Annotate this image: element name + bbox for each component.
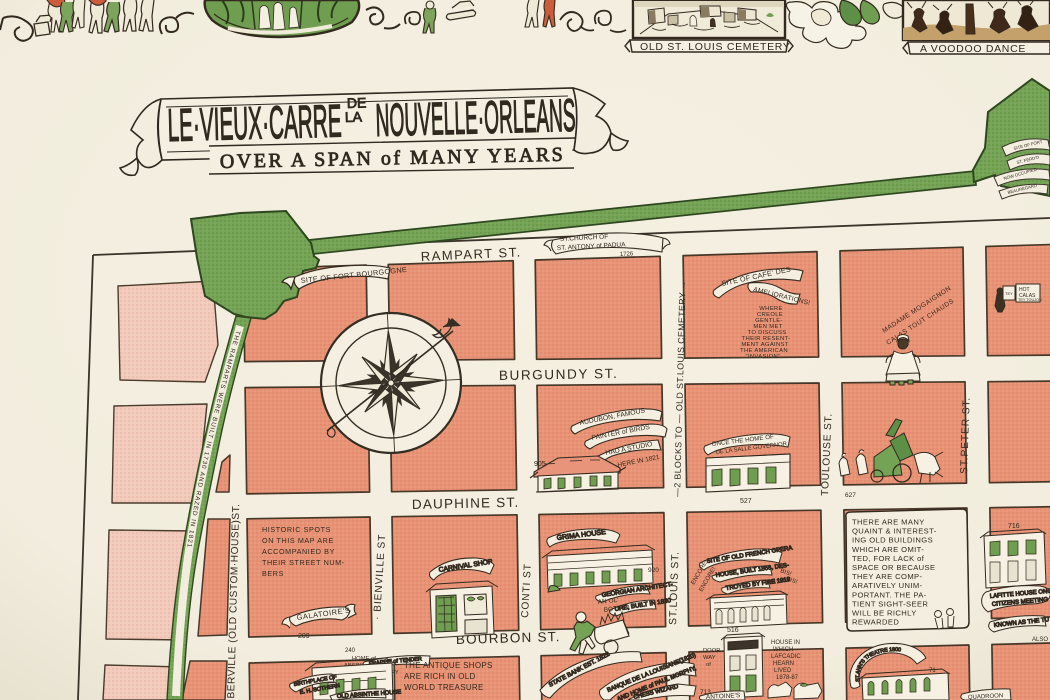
svg-text:THEY ARE COMP-: THEY ARE COMP- (852, 572, 923, 581)
svg-text:THE ANTIQUE SHOPS: THE ANTIQUE SHOPS (404, 661, 493, 670)
svg-text:HOUSE IN: HOUSE IN (771, 640, 800, 646)
svg-text:SPACE OR BECAUSE: SPACE OR BECAUSE (852, 563, 935, 572)
svg-text:ING OLD BUILDINGS: ING OLD BUILDINGS (852, 536, 933, 545)
svg-text:WILL BE RICHLY: WILL BE RICHLY (852, 609, 917, 618)
svg-text:HEARN: HEARN (773, 661, 794, 667)
svg-text:LIVED: LIVED (774, 668, 792, 674)
svg-text:LAFCADIC: LAFCADIC (771, 654, 801, 660)
svg-text:NOUVELLE·ORLEANS: NOUVELLE·ORLEANS (375, 89, 576, 146)
svg-text:ACCOMPANIED BY: ACCOMPANIED BY (262, 547, 335, 556)
svg-text:WORLD TREASURE: WORLD TREASURE (404, 683, 484, 692)
svg-text:QUADROON: QUADROON (968, 693, 1004, 700)
svg-text:LA: LA (345, 109, 363, 125)
svg-text:BURGUNDY ST.: BURGUNDY ST. (499, 366, 619, 383)
svg-text:920: 920 (648, 567, 659, 574)
svg-text:527: 527 (740, 498, 752, 505)
svg-text:TED, FOR LACK of: TED, FOR LACK of (852, 554, 925, 563)
svg-text:713: 713 (700, 689, 711, 696)
svg-text:ARATIVELY UNIM-: ARATIVELY UNIM- (852, 581, 923, 590)
svg-text:ALSO: ALSO (1032, 637, 1048, 643)
svg-text:516: 516 (727, 627, 739, 634)
svg-text:WHICH ARE OMIT-: WHICH ARE OMIT- (852, 545, 924, 554)
svg-text:627: 627 (845, 492, 856, 499)
svg-text:WAY: WAY (703, 655, 716, 661)
svg-text:PORTANT. THE PA-: PORTANT. THE PA- (852, 590, 927, 599)
svg-text:TEY: TEY (1005, 291, 1013, 296)
svg-text:of: of (706, 662, 711, 668)
svg-text:ANTOINE'S: ANTOINE'S (706, 692, 741, 700)
svg-text:ARE RICH IN OLD: ARE RICH IN OLD (404, 672, 476, 681)
svg-text:HISTORIC SPOTS: HISTORIC SPOTS (262, 525, 331, 534)
svg-text:DAUPHINE ST.: DAUPHINE ST. (412, 495, 520, 512)
svg-text:716: 716 (1008, 523, 1020, 530)
svg-text:TIENT SIGHT-SEER: TIENT SIGHT-SEER (852, 599, 928, 608)
svg-text:1726: 1726 (620, 251, 634, 258)
svg-text:A VOODOO DANCE: A VOODOO DANCE (920, 43, 1026, 55)
svg-text:THERE ARE MANY: THERE ARE MANY (852, 518, 925, 527)
svg-text:"INVASION": "INVASION" (746, 354, 781, 360)
svg-text:REWARDED: REWARDED (852, 618, 899, 627)
svg-text:905: 905 (534, 461, 546, 468)
svg-text:WHICH: WHICH (773, 647, 793, 653)
svg-text:1878-87: 1878-87 (776, 675, 799, 681)
svg-text:71: 71 (929, 668, 936, 674)
svg-text:BERS: BERS (262, 569, 284, 578)
svg-text:THEIR STREET NUM-: THEIR STREET NUM- (262, 558, 345, 567)
svg-text:TEY TOUJOU: TEY TOUJOU (1018, 298, 1042, 302)
svg-text:LE·VIEUX·CARRE: LE·VIEUX·CARRE (167, 95, 342, 151)
svg-text:OLD ST. LOUIS CEMETERY: OLD ST. LOUIS CEMETERY (640, 41, 791, 53)
svg-text:QUAINT & INTEREST-: QUAINT & INTEREST- (852, 527, 937, 536)
svg-text:ON THIS MAP ARE: ON THIS MAP ARE (262, 536, 334, 545)
svg-text:209: 209 (298, 633, 310, 640)
svg-text:DOOR: DOOR (703, 648, 720, 654)
svg-text:240: 240 (345, 648, 356, 654)
